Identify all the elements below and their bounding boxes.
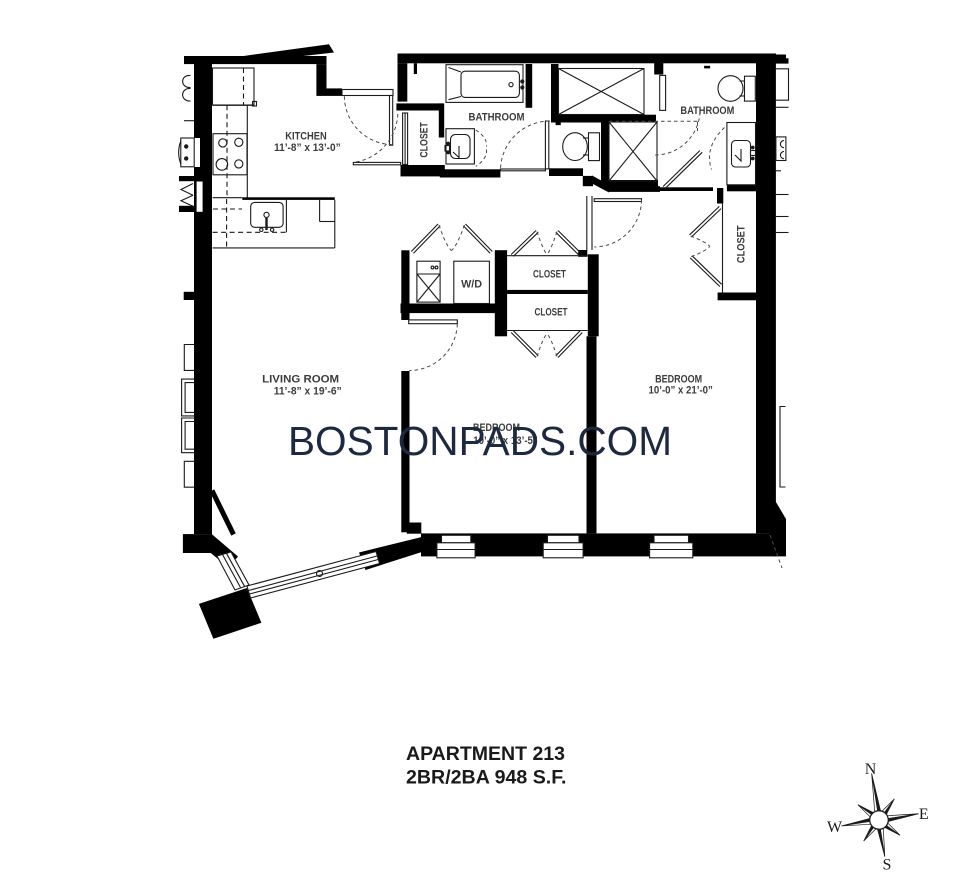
svg-text:S: S (883, 857, 892, 874)
svg-text:CLOSET: CLOSET (535, 306, 568, 318)
svg-text:10’-0” x 21’-0”: 10’-0” x 21’-0” (649, 384, 713, 396)
svg-text:W: W (827, 819, 843, 836)
svg-text:E: E (919, 806, 929, 823)
svg-text:KITCHEN: KITCHEN (285, 131, 327, 143)
svg-text:LIVING ROOM: LIVING ROOM (262, 373, 339, 385)
svg-text:2BR/2BA 948 S.F.: 2BR/2BA 948 S.F. (406, 768, 567, 789)
svg-text:W/D: W/D (461, 279, 482, 291)
svg-text:CLOSET: CLOSET (736, 225, 748, 263)
svg-text:BOSTONPADS.COM: BOSTONPADS.COM (288, 418, 672, 464)
svg-text:CLOSET: CLOSET (533, 268, 566, 280)
svg-text:APARTMENT 213: APARTMENT 213 (406, 744, 565, 765)
svg-text:BATHROOM: BATHROOM (469, 111, 525, 123)
svg-text:N: N (865, 761, 877, 778)
svg-text:CLOSET: CLOSET (419, 122, 431, 158)
svg-text:11’-8” x 19’-6”: 11’-8” x 19’-6” (274, 385, 342, 397)
svg-text:BATHROOM: BATHROOM (680, 105, 734, 117)
svg-text:11’-8” x 13’-0”: 11’-8” x 13’-0” (274, 142, 341, 154)
